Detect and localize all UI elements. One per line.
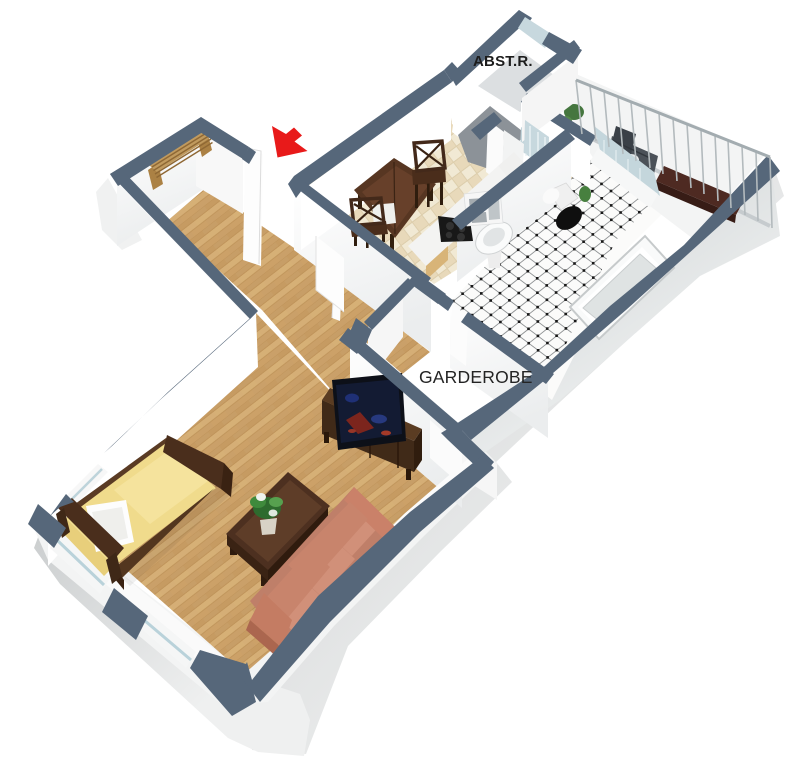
svg-text:ABST.R.: ABST.R. — [473, 53, 533, 70]
svg-text:GARDEROBE: GARDEROBE — [419, 367, 533, 387]
